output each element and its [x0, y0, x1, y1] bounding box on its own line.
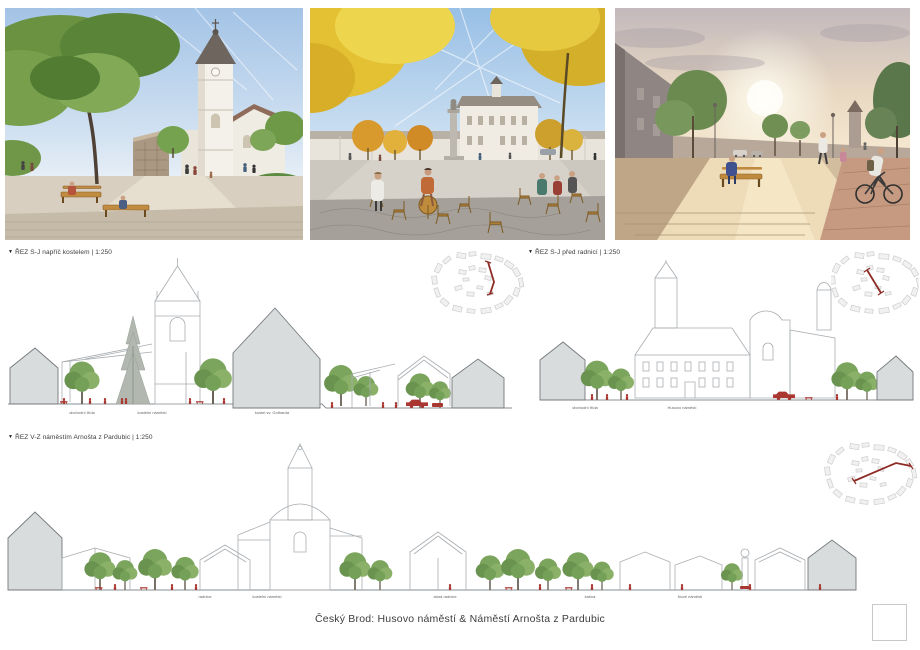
- ground-label: Husovo náměstí: [668, 405, 698, 410]
- presentation-board: ▼ŘEZ S-J napříč kostelem | 1:250 ▼ŘEZ S-…: [0, 0, 920, 650]
- logo-placeholder-box: [872, 604, 907, 641]
- church-outline: [655, 260, 835, 398]
- pavement: [5, 176, 303, 240]
- ground-label: obchodní třída: [572, 405, 598, 410]
- section-2-label: ŘEZ S-J před radnicí | 1:250: [535, 249, 620, 256]
- render-view-autumn-cafe: [310, 8, 605, 240]
- ground-label: kostelní náměstí: [137, 410, 167, 415]
- tree: [562, 552, 593, 590]
- render-cafe-illustration: [310, 8, 605, 240]
- tree: [501, 549, 535, 590]
- tree: [581, 361, 614, 400]
- fountain-statue: [741, 549, 749, 590]
- ground-label: radnice: [198, 594, 212, 599]
- section-2-title: ▼ŘEZ S-J před radnicí | 1:250: [528, 249, 620, 256]
- distant-car: [540, 149, 556, 155]
- cut-building-left: [540, 342, 585, 400]
- project-title: Český Brod: Husovo náměstí & Náměstí Arn…: [0, 613, 920, 625]
- section-marker-icon: ▼: [528, 249, 533, 255]
- section-cut-line: [854, 463, 911, 481]
- tree: [476, 555, 505, 590]
- ground-label: kostel sv. Gotharda: [255, 410, 290, 415]
- mid-outline-buildings: [410, 532, 805, 590]
- render-view-church-square: [5, 8, 303, 240]
- section-1-label: ŘEZ S-J napříč kostelem | 1:250: [15, 249, 112, 256]
- sun: [747, 80, 783, 116]
- ground-label: kašna: [585, 594, 596, 599]
- render-evening-illustration: [615, 8, 910, 240]
- cut-building-right: [877, 356, 913, 400]
- tree: [138, 549, 172, 590]
- cut-building-right: [808, 540, 856, 590]
- ground: [615, 158, 910, 240]
- tree: [324, 365, 358, 406]
- tree: [590, 562, 613, 590]
- cut-building-center: [233, 308, 320, 408]
- tree: [339, 552, 370, 590]
- ground-label: kostelní náměstí: [252, 594, 282, 599]
- ground-label: Nové náměstí: [678, 594, 704, 599]
- spruce-tree: [116, 316, 150, 404]
- section-1-title: ▼ŘEZ S-J napříč kostelem | 1:250: [8, 249, 112, 256]
- cut-building-right: [452, 359, 504, 408]
- render-church-illustration: [5, 8, 303, 240]
- cut-building-left: [10, 348, 58, 404]
- tree: [368, 560, 393, 590]
- church-tower: [155, 258, 200, 404]
- town-hall: [635, 328, 750, 398]
- tree: [84, 552, 115, 590]
- section-drawing-townhall: obchodní třída Husovo náměstí: [535, 260, 915, 412]
- cut-building-left: [8, 512, 62, 590]
- tree: [721, 563, 743, 590]
- tree: [171, 557, 198, 590]
- section-drawing-church: obchodní třída kostelní náměstí kostel s…: [0, 256, 520, 418]
- red-accents: [591, 392, 838, 401]
- tree: [113, 560, 138, 590]
- ground-label: stará radnice: [433, 594, 457, 599]
- tree: [608, 369, 634, 401]
- paving: [310, 160, 605, 240]
- red-accents: [95, 584, 821, 590]
- section-marker-icon: ▼: [8, 249, 13, 255]
- section-drawing-long: radnice kostelní náměstí stará radnice k…: [0, 440, 860, 602]
- ground-label: obchodní třída: [69, 410, 95, 415]
- render-view-evening-cyclist: [615, 8, 910, 240]
